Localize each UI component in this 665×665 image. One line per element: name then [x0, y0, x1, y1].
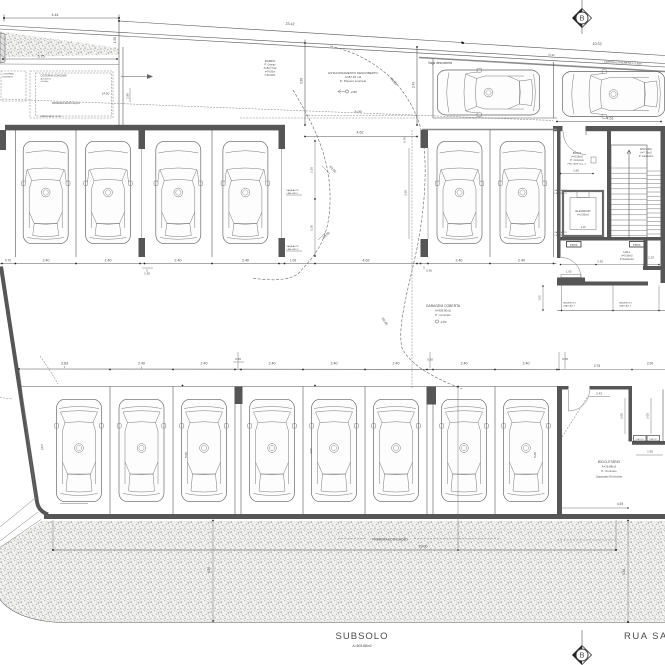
svg-text:2.40: 2.40	[523, 362, 530, 366]
svg-text:2.40: 2.40	[242, 259, 249, 263]
svg-text:2.40: 2.40	[331, 362, 338, 366]
svg-text:2.75: 2.75	[594, 364, 600, 368]
svg-text:2.00: 2.00	[647, 362, 653, 366]
svg-text:BICICLETÁRIO: BICICLETÁRIO	[598, 460, 621, 464]
svg-text:2.40: 2.40	[269, 362, 276, 366]
svg-text:P.: Pisover concreto: P.: Pisover concreto	[340, 79, 367, 83]
svg-text:P:Gardenico: P:Gardenico	[620, 258, 635, 261]
svg-text:4.93: 4.93	[40, 444, 45, 451]
svg-text:0.30: 0.30	[426, 269, 432, 273]
svg-text:2.43: 2.43	[596, 392, 602, 396]
svg-text:4.44: 4.44	[52, 13, 59, 17]
svg-text:29.00: 29.00	[419, 545, 428, 549]
svg-text:-2.85: -2.85	[350, 90, 357, 94]
svg-text:0.78: 0.78	[403, 137, 407, 143]
svg-text:2.40: 2.40	[105, 259, 112, 263]
svg-text:I.BALCÃO 1: I.BALCÃO 1	[287, 192, 300, 195]
svg-text:VAGA AUTO: VAGA AUTO	[555, 231, 568, 234]
svg-text:4.45: 4.45	[617, 502, 623, 506]
svg-text:CISTERNA CONSUMO: CISTERNA CONSUMO	[41, 74, 67, 77]
svg-text:I.BALCÃO 5: I.BALCÃO 5	[563, 305, 576, 308]
svg-text:2.40: 2.40	[461, 362, 468, 366]
svg-text:P.BOX: P.BOX	[633, 243, 641, 247]
svg-text:A=2.80m2: A=2.80m2	[577, 214, 589, 217]
svg-text:CAPACIDADE 10.000: CAPACIDADE 10.000	[40, 115, 62, 118]
svg-text:V.MOTO: V.MOTO	[636, 439, 645, 441]
svg-text:Capacidade:56 bicicletas: Capacidade:56 bicicletas	[596, 476, 623, 479]
svg-text:1.05: 1.05	[538, 295, 542, 301]
svg-text:ELEVADOR: ELEVADOR	[575, 209, 590, 213]
svg-text:0.70: 0.70	[5, 259, 11, 263]
svg-text:ESCADA: ESCADA	[640, 147, 652, 151]
svg-text:GARAGEM COBERTA: GARAGEM COBERTA	[426, 304, 461, 308]
svg-text:2.49: 2.49	[412, 82, 416, 88]
svg-text:Vaga descoberta: Vaga descoberta	[428, 61, 452, 65]
svg-text:2.88: 2.88	[126, 93, 130, 99]
svg-text:1.09: 1.09	[290, 259, 296, 263]
svg-text:5.00: 5.00	[184, 452, 188, 458]
svg-text:2.40: 2.40	[175, 259, 182, 263]
svg-text:5.75: 5.75	[38, 55, 45, 59]
svg-text:1.30: 1.30	[144, 272, 150, 276]
svg-text:3.63: 3.63	[61, 362, 68, 366]
svg-text:5.09: 5.09	[355, 110, 362, 114]
svg-text:2.40: 2.40	[518, 259, 525, 263]
svg-text:22.93: 22.93	[548, 53, 555, 57]
svg-text:RUA SA: RUA SA	[624, 631, 665, 642]
svg-text:2.40: 2.40	[201, 362, 208, 366]
svg-text:VAGA MOTO: VAGA MOTO	[563, 302, 576, 305]
svg-text:4.62: 4.62	[363, 259, 370, 263]
svg-text:CISTERNA: CISTERNA	[3, 73, 15, 76]
svg-text:14.50: 14.50	[102, 91, 110, 95]
svg-text:1.95: 1.95	[647, 450, 653, 454]
svg-text:2.40: 2.40	[456, 259, 463, 263]
svg-text:SUBSOLO: SUBSOLO	[336, 631, 389, 642]
svg-text:B: B	[579, 14, 584, 23]
svg-text:2.20: 2.20	[310, 167, 314, 173]
svg-text:I.BALCÃO 3: I.BALCÃO 3	[555, 192, 568, 195]
svg-text:2.20: 2.20	[310, 225, 314, 231]
svg-text:VAGA AUTO: VAGA AUTO	[287, 245, 300, 248]
svg-text:V.MOTO: V.MOTO	[649, 439, 658, 441]
svg-text:10.53: 10.53	[592, 42, 601, 47]
svg-text:2.40: 2.40	[138, 362, 145, 366]
svg-text:I.BALCÃO 6: I.BALCÃO 6	[619, 305, 632, 308]
svg-text:A=16.88m2: A=16.88m2	[602, 465, 617, 469]
svg-text:PRIMEIRA EDIFICAÇÃO: PRIMEIRA EDIFICAÇÃO	[52, 102, 80, 105]
svg-text:5.00: 5.00	[533, 452, 537, 458]
svg-text:3.36: 3.36	[300, 78, 304, 84]
svg-text:B: B	[579, 651, 584, 660]
svg-text:PROJ.AGE disp. 2°: PROJ.AGE disp. 2°	[568, 162, 587, 165]
svg-text:-2.80: -2.80	[440, 320, 447, 324]
svg-text:P : Concreto: P : Concreto	[435, 313, 451, 317]
svg-text:I.BALCÃO 2: I.BALCÃO 2	[287, 248, 300, 251]
svg-text:2.40: 2.40	[43, 259, 50, 263]
svg-text:2.05: 2.05	[620, 413, 624, 419]
svg-text:i=6.00m: i=6.00m	[41, 81, 49, 83]
svg-text:4.50: 4.50	[622, 569, 626, 575]
svg-text:i=16.20%: i=16.20%	[265, 74, 276, 77]
svg-text:BOX 9: BOX 9	[573, 151, 582, 155]
svg-text:1.65: 1.65	[573, 169, 579, 173]
svg-text:4.51: 4.51	[607, 117, 614, 121]
svg-text:A=503.88m2: A=503.88m2	[352, 644, 371, 648]
svg-text:5.00: 5.00	[309, 448, 313, 454]
svg-text:3.35: 3.35	[597, 260, 603, 264]
svg-text:P.BOX: P.BOX	[570, 243, 578, 247]
svg-text:3.68: 3.68	[404, 190, 408, 196]
svg-text:PRIMEIRA EDIFICAÇÃO: PRIMEIRA EDIFICAÇÃO	[372, 537, 408, 542]
svg-text:P.: Concreto: P.: Concreto	[570, 159, 584, 162]
svg-text:1.50: 1.50	[113, 37, 117, 43]
svg-text:VAGA AUTO: VAGA AUTO	[287, 189, 300, 192]
svg-text:INCENDIO: INCENDIO	[3, 77, 14, 79]
svg-text:P: Gardenico: P: Gardenico	[639, 155, 654, 158]
svg-text:RAMPA: RAMPA	[265, 59, 275, 63]
svg-text:1.20: 1.20	[581, 226, 586, 229]
svg-text:2.40: 2.40	[393, 362, 400, 366]
svg-text:23.42: 23.42	[285, 22, 294, 27]
svg-text:P.: Concreto: P.: Concreto	[601, 469, 617, 473]
svg-text:2.05: 2.05	[646, 413, 650, 419]
svg-text:VAGA MOTO: VAGA MOTO	[619, 302, 632, 305]
svg-text:4.50: 4.50	[207, 567, 211, 573]
svg-text:2.23: 2.23	[648, 256, 654, 260]
svg-text:HALL: HALL	[624, 250, 631, 254]
svg-text:1.05: 1.05	[566, 270, 572, 274]
svg-text:4.62: 4.62	[357, 131, 364, 135]
